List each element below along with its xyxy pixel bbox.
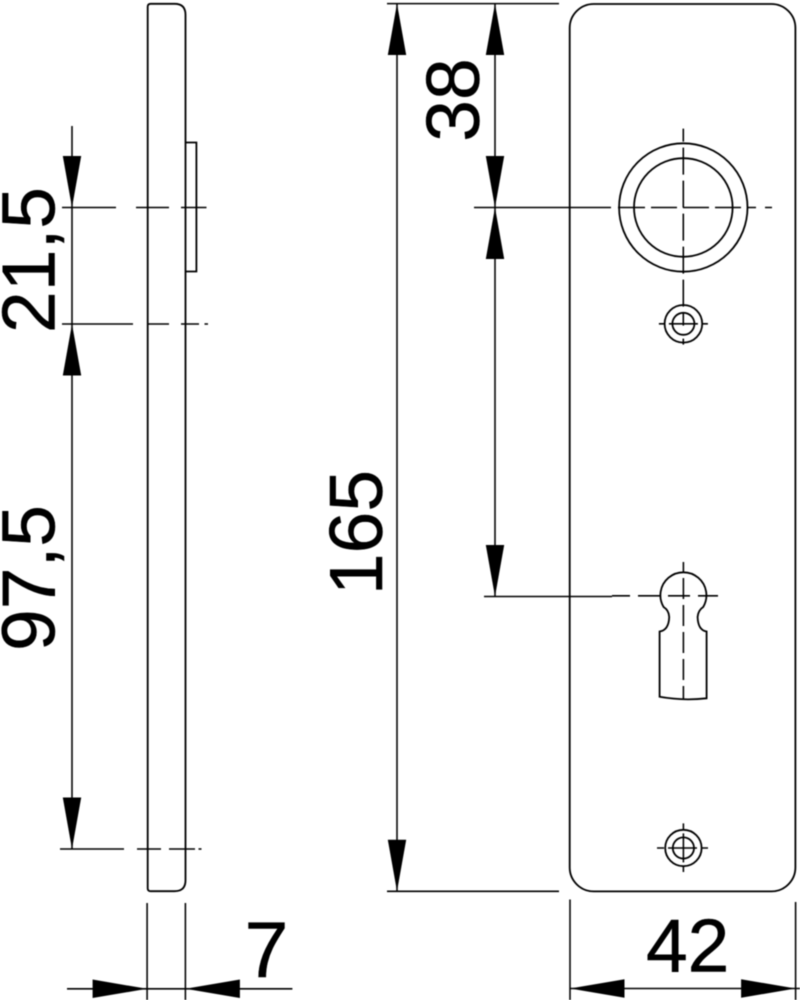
svg-text:38: 38	[411, 58, 495, 141]
svg-text:42: 42	[646, 903, 729, 987]
svg-text:21,5: 21,5	[0, 187, 71, 333]
svg-text:165: 165	[314, 470, 398, 595]
svg-text:97,5: 97,5	[0, 505, 71, 651]
svg-text:7: 7	[245, 905, 289, 994]
